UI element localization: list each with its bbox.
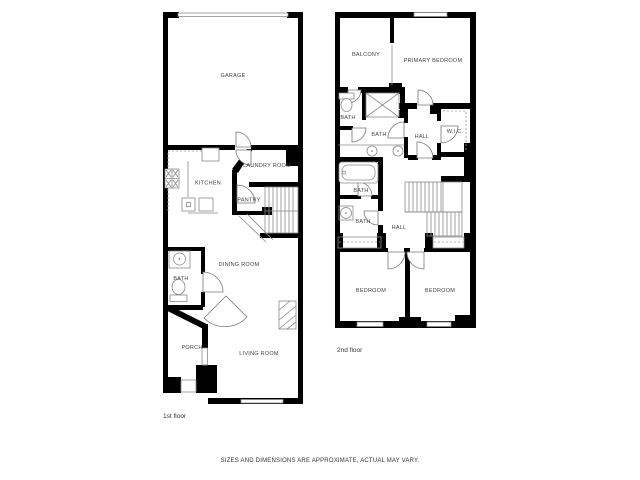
room-label-dining-room: DINING ROOM <box>219 262 260 268</box>
disclaimer-text: SIZES AND DIMENSIONS ARE APPROXIMATE, AC… <box>221 458 420 464</box>
bedroom-right-window <box>427 322 451 327</box>
room-label-bath-lower: BATH <box>355 219 370 225</box>
entry-door-arc <box>204 296 247 327</box>
living-room-window <box>241 400 283 404</box>
fireplace <box>279 301 296 329</box>
room-label-bath-small: BATH <box>340 115 355 121</box>
room-label-bath-main: BATH <box>371 132 386 138</box>
caption-first-floor: 1st floor <box>163 413 187 420</box>
closet-left <box>338 237 381 248</box>
hall-door-arc <box>417 142 433 158</box>
room-label-balcony: BALCONY <box>352 52 380 58</box>
floor-plan-first: GARAGE KITCHEN LAUNDRY ROOM PANTRY DININ… <box>163 12 303 420</box>
kitchen-island <box>182 198 195 211</box>
room-label-bedroom-right: BEDROOM <box>425 288 455 294</box>
second-floor-bath-fixtures <box>338 93 404 220</box>
porch-window <box>202 348 208 365</box>
garage-door <box>178 13 288 17</box>
room-label-kitchen: KITCHEN <box>195 181 221 187</box>
second-floor-stairs <box>405 182 462 236</box>
floorplan-drawing: GARAGE KITCHEN LAUNDRY ROOM PANTRY DININ… <box>0 0 640 480</box>
primary-door-arc <box>418 90 433 105</box>
room-label-porch: PORCH <box>181 345 202 351</box>
room-label-primary-bedroom: PRIMARY BEDROOM <box>404 58 463 64</box>
caption-second-floor: 2nd floor <box>337 347 363 354</box>
room-label-bedroom-left: BEDROOM <box>356 288 386 294</box>
room-label-hall-upper: HALL <box>415 134 430 140</box>
room-label-living-room: LIVING ROOM <box>239 351 279 357</box>
closet-right <box>433 237 464 248</box>
kitchen-island-2 <box>199 198 213 211</box>
primary-bedroom-window <box>414 13 447 17</box>
sink-counter <box>202 148 219 161</box>
room-label-garage: GARAGE <box>220 73 245 79</box>
garage-door-arc <box>236 132 251 147</box>
room-label-laundry: LAUNDRY ROOM <box>243 163 291 169</box>
room-label-hall-lower: HALL <box>392 225 407 231</box>
bedroom-left-door-arc <box>388 252 405 269</box>
bath-small-door-arc <box>352 128 366 142</box>
room-label-bath-tub: BATH <box>353 188 368 194</box>
porch-steps <box>181 380 196 392</box>
bedroom-left-window <box>357 322 383 327</box>
bath-door-arc <box>203 272 223 292</box>
room-label-pantry: PANTRY <box>237 198 260 204</box>
floor-plan-second: BALCONY PRIMARY BEDROOM BATH BATH HALL W… <box>335 12 476 354</box>
bath-main-door-arc <box>388 122 404 138</box>
floorplan-canvas: GARAGE KITCHEN LAUNDRY ROOM PANTRY DININ… <box>0 0 640 480</box>
room-label-bath-1st: BATH <box>173 276 188 282</box>
room-label-wic: W.I.C. <box>447 129 464 135</box>
